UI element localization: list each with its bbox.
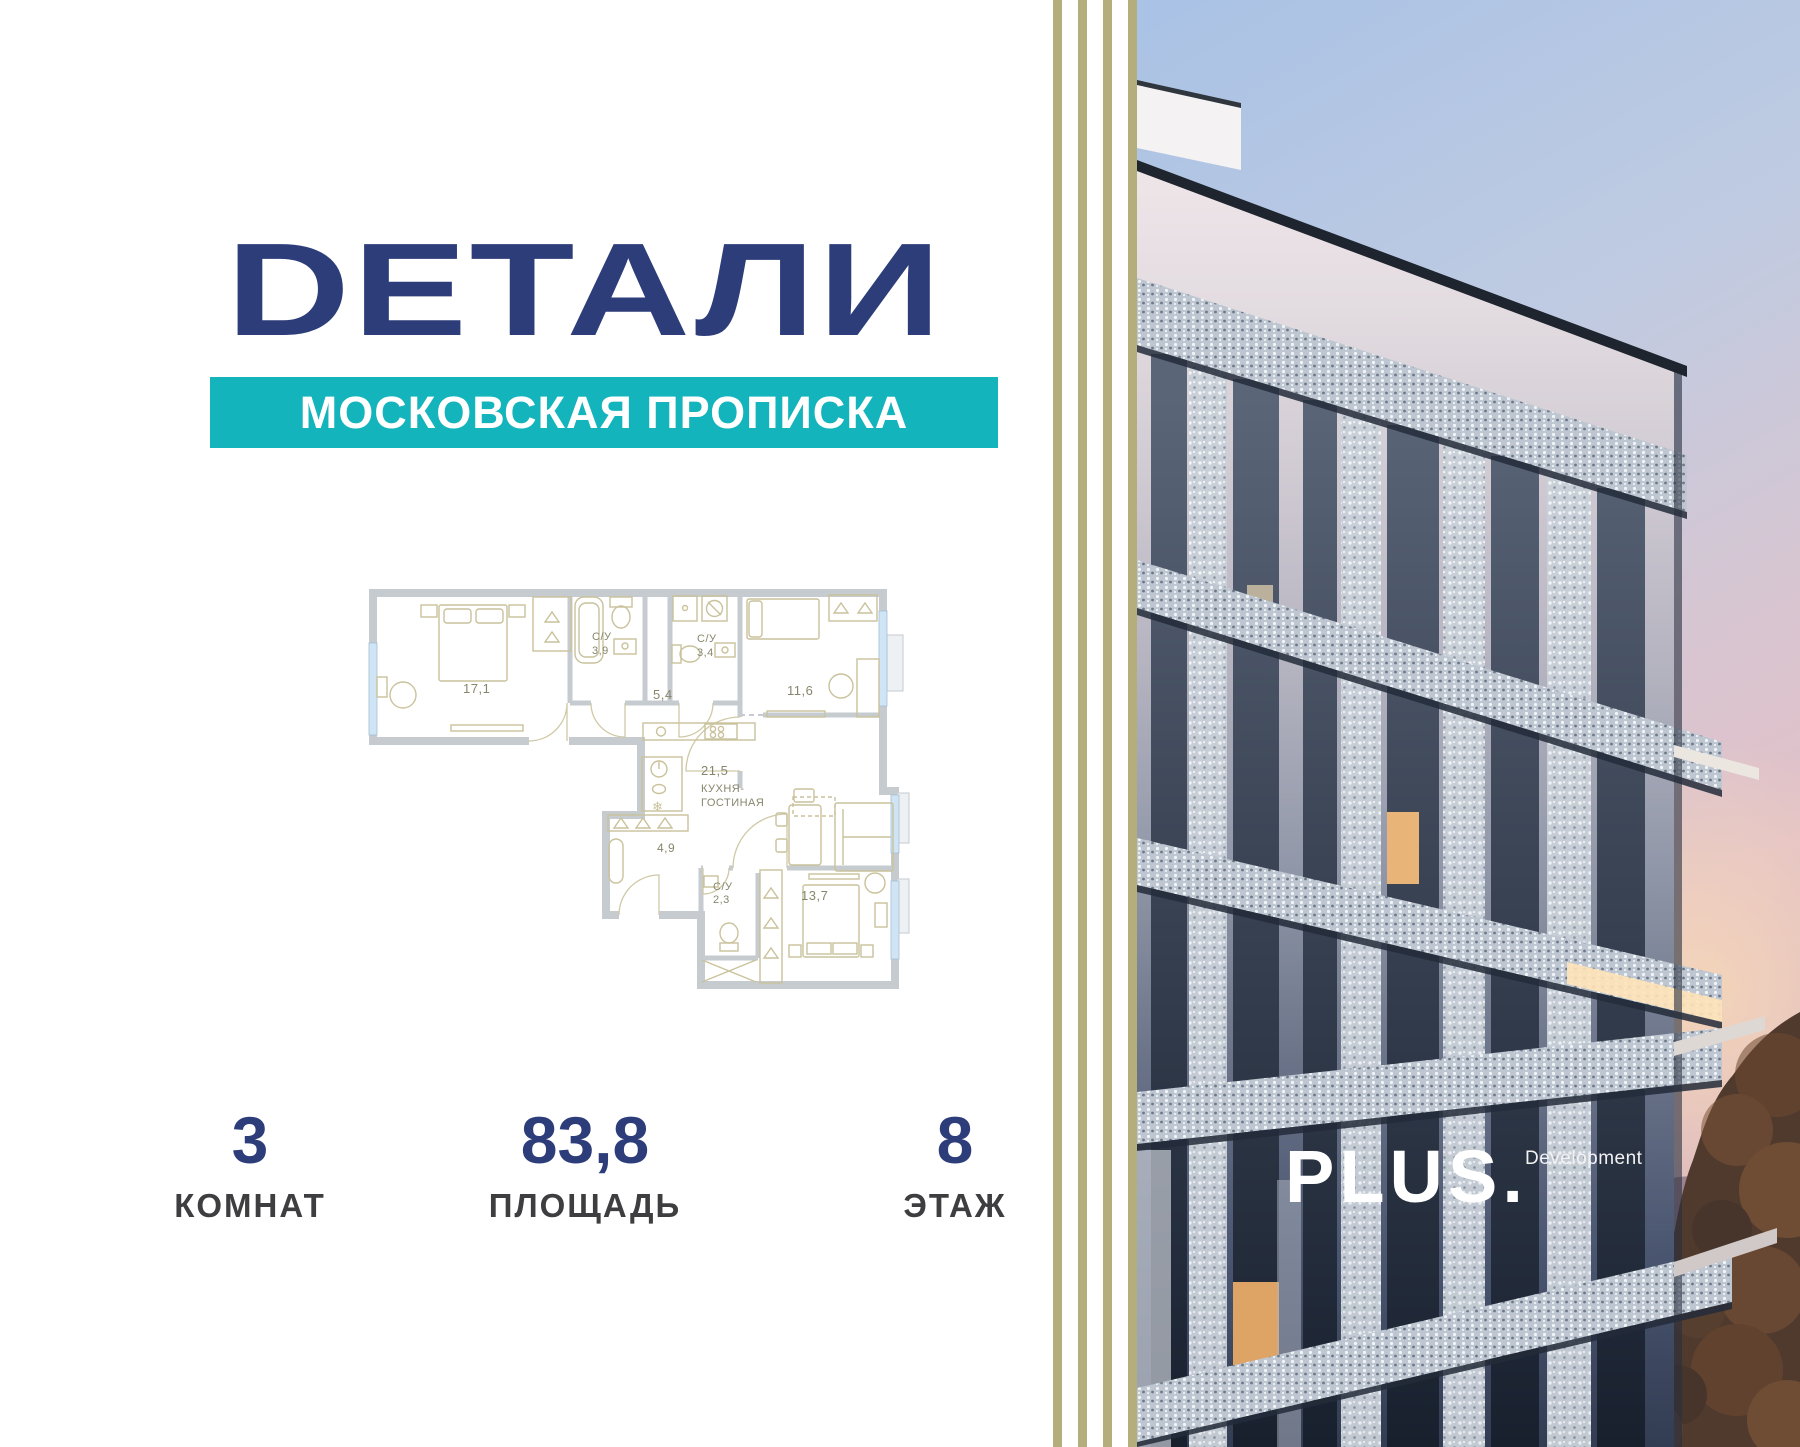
room-area-label: 2,3 bbox=[713, 894, 730, 906]
freezer-icon: ❄ bbox=[652, 799, 663, 814]
room-area-label: 17,1 bbox=[463, 681, 490, 696]
room-area-label: 13,7 bbox=[801, 888, 828, 903]
stripe bbox=[1103, 0, 1112, 1447]
stat-floor: 8 ЭТАЖ bbox=[830, 1105, 1080, 1225]
project-logo: DЕТАЛИ bbox=[0, 224, 1229, 356]
stat-label: ПЛОЩАДЬ bbox=[425, 1187, 745, 1225]
stripe bbox=[1128, 0, 1137, 1447]
stat-rooms: 3 КОМНАТ bbox=[130, 1105, 370, 1225]
room-area-label: 11,6 bbox=[787, 683, 813, 698]
room-area-label: 3,9 bbox=[592, 645, 609, 657]
room-area-label: 4,9 bbox=[657, 841, 675, 855]
stat-value: 83,8 bbox=[425, 1105, 745, 1175]
floorplan: ❄ bbox=[363, 583, 913, 995]
stat-label: КОМНАТ bbox=[130, 1187, 370, 1225]
developer-tagline: Development bbox=[1525, 1148, 1642, 1170]
stat-area: 83,8 ПЛОЩАДЬ bbox=[425, 1105, 745, 1225]
building-render bbox=[1137, 0, 1800, 1447]
stripe bbox=[1078, 0, 1087, 1447]
stripe bbox=[1053, 0, 1062, 1447]
stat-value: 3 bbox=[130, 1105, 370, 1175]
building-photo: PLUS. Development bbox=[1137, 0, 1800, 1447]
lit-window bbox=[1387, 812, 1419, 884]
room-area-label: С/У bbox=[713, 881, 733, 893]
room-area-label: 3,4 bbox=[697, 647, 714, 659]
room-name-label: ГОСТИНАЯ bbox=[701, 797, 764, 809]
floorplan-walls bbox=[373, 593, 895, 985]
developer-logo: PLUS. bbox=[1285, 1140, 1528, 1214]
facade-edge bbox=[1674, 371, 1682, 1447]
room-area-label: С/У bbox=[592, 631, 612, 643]
info-panel: DЕТАЛИ МОСКОВСКАЯ ПРОПИСКА bbox=[0, 0, 1053, 1447]
room-area-label: 5,4 bbox=[653, 687, 673, 702]
room-area-label: 21,5 bbox=[701, 763, 728, 778]
listing-card: DЕТАЛИ МОСКОВСКАЯ ПРОПИСКА bbox=[0, 0, 1800, 1447]
room-area-label: С/У bbox=[697, 633, 717, 645]
room-name-label: КУХНЯ- bbox=[701, 783, 744, 795]
stat-label: ЭТАЖ bbox=[830, 1187, 1080, 1225]
stat-value: 8 bbox=[830, 1105, 1080, 1175]
project-subtitle-banner: МОСКОВСКАЯ ПРОПИСКА bbox=[210, 377, 998, 448]
project-subtitle: МОСКОВСКАЯ ПРОПИСКА bbox=[300, 387, 908, 439]
